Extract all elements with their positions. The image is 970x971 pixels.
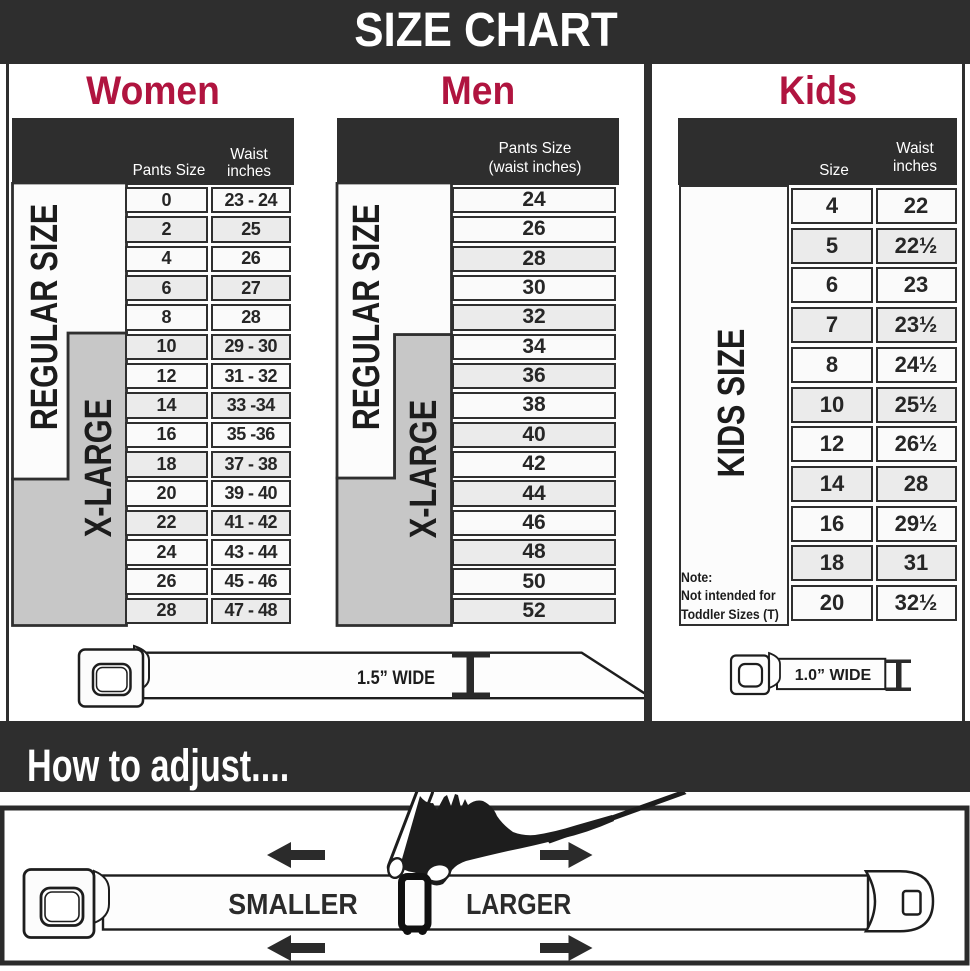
svg-text:LARGER: LARGER (466, 888, 571, 920)
svg-text:SMALLER: SMALLER (228, 888, 357, 920)
